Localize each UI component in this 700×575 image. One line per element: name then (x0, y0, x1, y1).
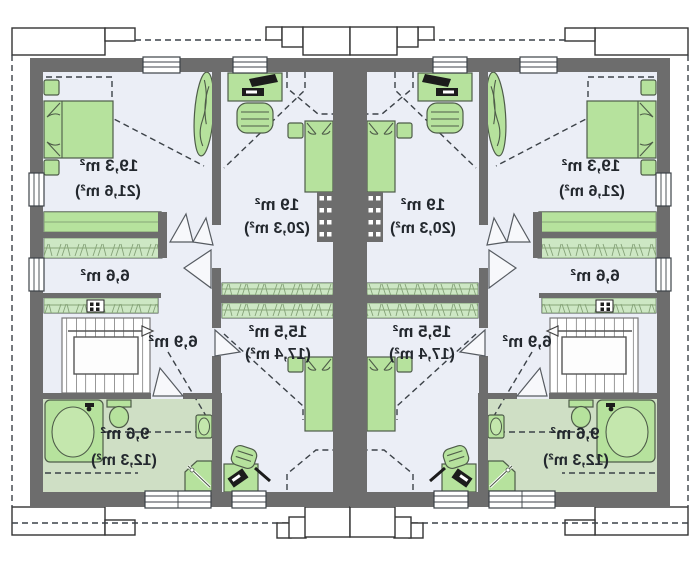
room-label-bedroom-middle-left-total: (20,3 m²) (244, 220, 310, 237)
room-label-wardrobe-hall-left: 6,6 m² (80, 266, 129, 285)
room-label-bedroom-middle-right: 19 m² (400, 195, 445, 214)
unit-right (350, 27, 688, 538)
room-label-wardrobe-hall-right: 6,6 m² (570, 266, 619, 285)
room-label-bathroom-left-total: (12,3 m²) (91, 452, 157, 469)
room-label-bedroom-middle-right-total: (20,3 m²) (390, 220, 456, 237)
unit-left (12, 27, 350, 538)
room-label-bedroom-top-left: 19,3 m² (79, 156, 138, 175)
room-label-bathroom-left: 9,6 m² (100, 424, 149, 443)
room-label-bedroom-bottom-left-total: (17,4 m²) (245, 346, 311, 363)
room-label-bedroom-top-right: 19,3 m² (561, 156, 620, 175)
room-label-bedroom-bottom-right: 15,5 m² (392, 322, 451, 341)
room-label-bedroom-top-left-total: (21,6 m²) (75, 183, 141, 200)
floor-plan: 19,3 m² (21,6 m²) 19 m² (20,3 m²) 6,6 m²… (0, 0, 700, 575)
room-label-stair-hall-left: 6,9 m² (148, 332, 197, 351)
room-label-bedroom-top-right-total: (21,6 m²) (559, 183, 625, 200)
room-label-stair-hall-right: 6,9 m² (502, 332, 551, 351)
floor-plan-drawing: 19,3 m² (21,6 m²) 19 m² (20,3 m²) 6,6 m²… (0, 0, 700, 575)
room-label-bathroom-right-total: (12,3 m²) (543, 452, 609, 469)
room-label-bathroom-right: 9,6 m² (550, 424, 599, 443)
room-label-bedroom-middle-left: 19 m² (254, 195, 299, 214)
room-label-bedroom-bottom-right-total: (17,4 m²) (389, 346, 455, 363)
room-label-bedroom-bottom-left: 15,5 m² (248, 322, 307, 341)
